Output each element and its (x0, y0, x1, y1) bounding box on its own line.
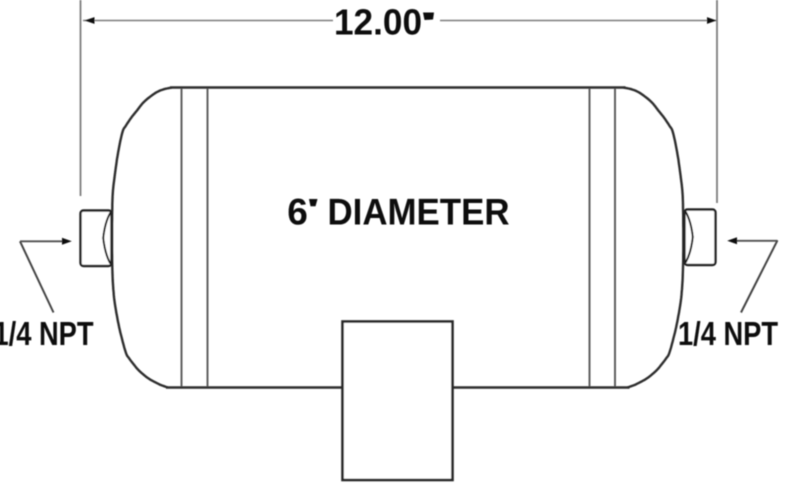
svg-text:1/4 NPT: 1/4 NPT (0, 315, 94, 352)
svg-text:1/4 NPT: 1/4 NPT (678, 315, 778, 352)
svg-text:6: 6 (287, 191, 308, 232)
svg-text:DIAMETER: DIAMETER (328, 191, 510, 232)
svg-text:12.00: 12.00 (334, 2, 422, 43)
